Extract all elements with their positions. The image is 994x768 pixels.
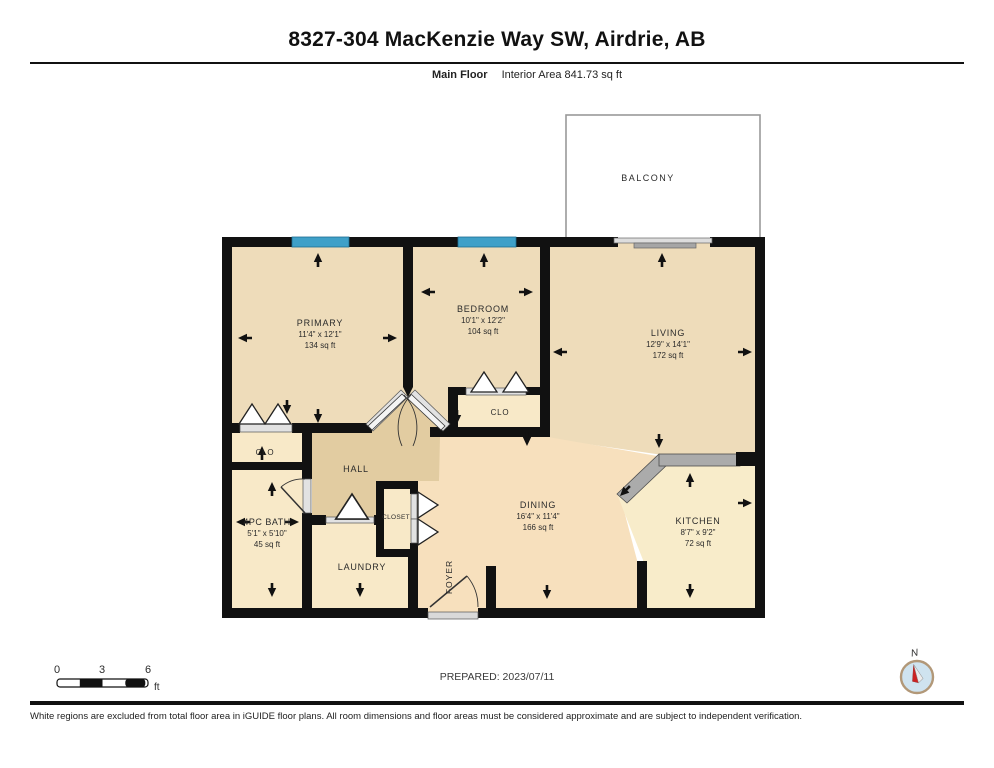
counter-horizontal [659, 454, 740, 466]
compass-north-label: N [910, 647, 920, 659]
room-dims-primary: 11'4" x 12'1" [298, 330, 341, 339]
room-area-kitchen: 72 sq ft [685, 539, 712, 548]
prepared-date: PREPARED: 2023/07/11 [0, 671, 994, 683]
slider-panel [634, 243, 696, 248]
footer-disclaimer: White regions are excluded from total fl… [30, 711, 964, 722]
floor-plan-svg: BALCONY [0, 0, 994, 768]
room-label-living: LIVING [651, 328, 685, 338]
room-dims-kitchen: 8'7" x 9'2" [681, 528, 716, 537]
room-label-clo-primary: CLO [256, 448, 275, 457]
room-area-living: 172 sq ft [653, 351, 684, 360]
room-dims-bedroom: 10'1" x 12'2" [461, 316, 505, 325]
scale-unit: ft [154, 682, 160, 693]
room-label-closet: CLOSET [382, 514, 410, 521]
window-bedroom [458, 237, 516, 247]
room-label-balcony: BALCONY [621, 173, 675, 183]
room-dims-dining: 16'4" x 11'4" [516, 512, 559, 521]
footer-divider [30, 701, 964, 705]
room-dims-living: 12'9" x 14'1" [646, 340, 690, 349]
room-label-kitchen: KITCHEN [675, 516, 720, 526]
room-label-primary: PRIMARY [297, 318, 343, 328]
slider-track [614, 238, 712, 243]
window-primary [292, 237, 349, 247]
room-label-dining: DINING [520, 500, 556, 510]
room-label-bath: 4PC BATH [243, 517, 290, 527]
room-area-bedroom: 104 sq ft [468, 327, 499, 336]
room-label-laundry: LAUNDRY [338, 562, 386, 572]
room-dims-bath: 5'1" x 5'10" [247, 529, 287, 538]
room-label-foyer: FOYER [444, 560, 454, 594]
room-area-bath: 45 sq ft [254, 540, 281, 549]
floor-plan-page: 8327-304 MacKenzie Way SW, Airdrie, AB M… [0, 0, 994, 768]
room-label-clo-bedroom: CLO [491, 408, 510, 417]
room-label-hall: HALL [343, 464, 369, 474]
room-area-dining: 166 sq ft [523, 523, 554, 532]
room-area-primary: 134 sq ft [305, 341, 336, 350]
room-label-bedroom: BEDROOM [457, 304, 509, 314]
